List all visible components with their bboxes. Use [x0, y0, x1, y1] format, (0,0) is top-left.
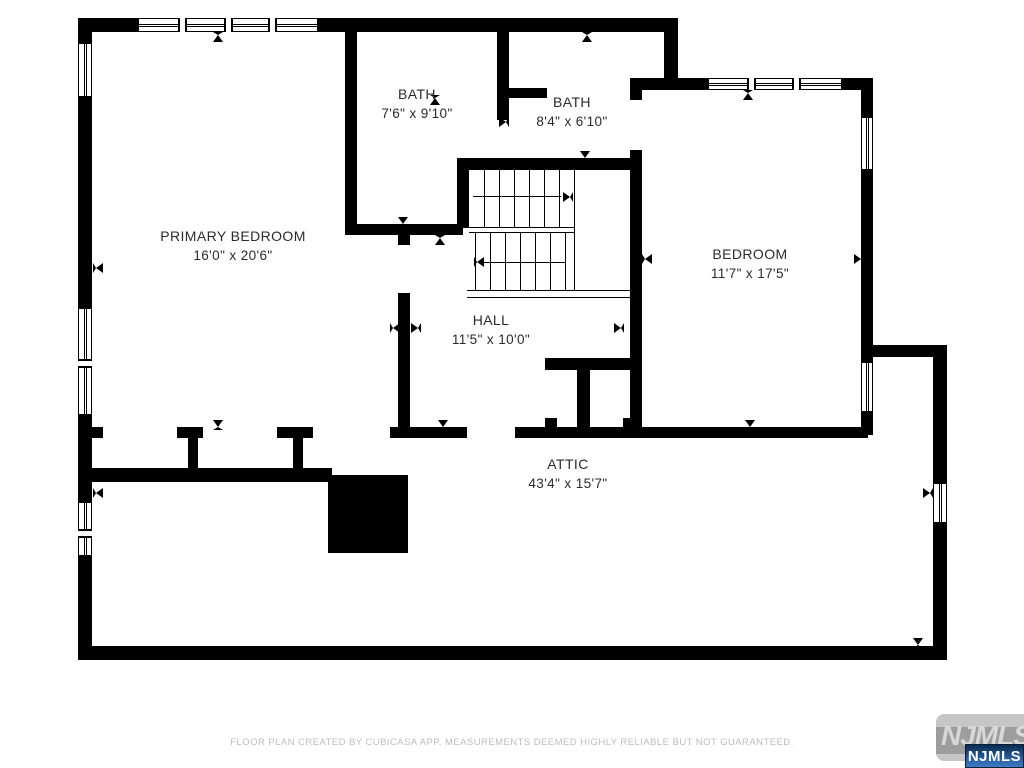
room-label-bedroom: BEDROOM 11'7" x 17'5" — [711, 245, 789, 283]
wall — [515, 427, 868, 438]
window-pane-line — [709, 85, 841, 86]
njmls-badge: NJMLS — [965, 744, 1024, 768]
window-pane-line — [941, 484, 942, 522]
window-pane-line — [939, 484, 940, 522]
stair-tread — [484, 170, 485, 227]
wall — [398, 235, 410, 245]
room-dimensions: 8'4" x 6'10" — [536, 112, 607, 131]
wall — [630, 90, 642, 100]
wall — [277, 427, 313, 438]
window-pane-line — [868, 118, 869, 169]
room-label-hall: HALL 11'5" x 10'0" — [452, 311, 530, 349]
room-name: HALL — [452, 311, 530, 330]
window-divider — [178, 18, 187, 32]
door-marker — [745, 420, 755, 430]
door-marker — [213, 420, 223, 430]
window — [861, 117, 873, 170]
door-marker — [474, 257, 484, 267]
stair-down-arrow-shaft — [482, 262, 566, 263]
wall — [78, 646, 947, 660]
window-divider — [792, 78, 801, 90]
window-pane-line — [84, 44, 85, 96]
door-marker — [854, 254, 864, 264]
window — [78, 502, 92, 556]
room-dimensions: 43'4" x 15'7" — [528, 474, 607, 493]
room-dimensions: 11'7" x 17'5" — [711, 264, 789, 283]
stair-up-arrow-shaft — [473, 196, 561, 197]
window — [933, 483, 947, 523]
door-marker — [582, 32, 592, 42]
door-marker — [499, 117, 509, 127]
room-dimensions: 7'6" x 9'10" — [381, 104, 452, 123]
door-marker — [642, 254, 652, 264]
stair-tread — [499, 170, 500, 227]
window-divider — [78, 529, 92, 538]
door-marker — [411, 323, 421, 333]
window-pane-line — [709, 83, 841, 84]
window-divider — [224, 18, 233, 32]
window — [861, 362, 873, 412]
wall — [630, 150, 642, 428]
room-name: ATTIC — [528, 455, 607, 474]
wall — [577, 370, 590, 428]
window-divider — [747, 78, 756, 90]
room-name: BEDROOM — [711, 245, 789, 264]
wall — [92, 468, 332, 482]
wall — [623, 418, 635, 428]
stair-bottom-edge — [467, 290, 630, 298]
door-marker — [390, 323, 400, 333]
door-marker — [435, 235, 445, 245]
door-marker — [93, 488, 103, 498]
room-label-primary-bedroom: PRIMARY BEDROOM 16'0" x 20'6" — [160, 227, 306, 265]
wall — [188, 438, 198, 470]
room-name: PRIMARY BEDROOM — [160, 227, 306, 246]
door-marker — [213, 32, 223, 42]
wall — [90, 427, 103, 438]
wall — [497, 32, 509, 120]
floor-plan: BATH 7'6" x 9'10" BATH 8'4" x 6'10" PRIM… — [0, 0, 1024, 768]
stair-landing — [469, 227, 574, 233]
window-pane-line — [866, 363, 867, 411]
chimney-block — [328, 475, 408, 553]
room-name: BATH — [381, 85, 452, 104]
stair-tread — [544, 170, 545, 227]
window-divider — [268, 18, 277, 32]
stair-side-line — [574, 170, 575, 290]
wall — [293, 438, 303, 470]
stair-tread — [514, 170, 515, 227]
wall — [545, 358, 642, 370]
wall — [457, 158, 469, 228]
wall — [345, 32, 357, 235]
room-dimensions: 11'5" x 10'0" — [452, 330, 530, 349]
window — [138, 18, 318, 32]
window-pane-line — [868, 363, 869, 411]
window — [78, 308, 92, 415]
window-divider — [78, 359, 92, 368]
window-pane-line — [866, 118, 867, 169]
wall — [873, 345, 947, 357]
window — [708, 78, 842, 90]
door-marker — [580, 151, 590, 161]
window — [78, 43, 92, 97]
wall — [545, 418, 557, 428]
door-marker — [398, 217, 408, 227]
wall — [457, 158, 642, 170]
footer-disclaimer: FLOOR PLAN CREATED BY CUBICASA APP. MEAS… — [0, 737, 1024, 748]
room-label-attic: ATTIC 43'4" x 15'7" — [528, 455, 607, 493]
door-marker — [438, 420, 448, 430]
door-marker — [743, 90, 753, 100]
door-marker — [923, 488, 933, 498]
stair-tread — [529, 170, 530, 227]
door-marker — [913, 638, 923, 648]
stair-tread — [559, 170, 560, 227]
door-marker — [563, 192, 573, 202]
room-label-bath-1: BATH 7'6" x 9'10" — [381, 85, 452, 123]
door-marker — [93, 263, 103, 273]
wall — [177, 427, 203, 438]
door-marker — [614, 323, 624, 333]
room-name: BATH — [536, 93, 607, 112]
wall — [390, 427, 467, 438]
room-dimensions: 16'0" x 20'6" — [160, 246, 306, 265]
wall — [398, 293, 410, 438]
window-pane-line — [86, 44, 87, 96]
room-label-bath-2: BATH 8'4" x 6'10" — [536, 93, 607, 131]
